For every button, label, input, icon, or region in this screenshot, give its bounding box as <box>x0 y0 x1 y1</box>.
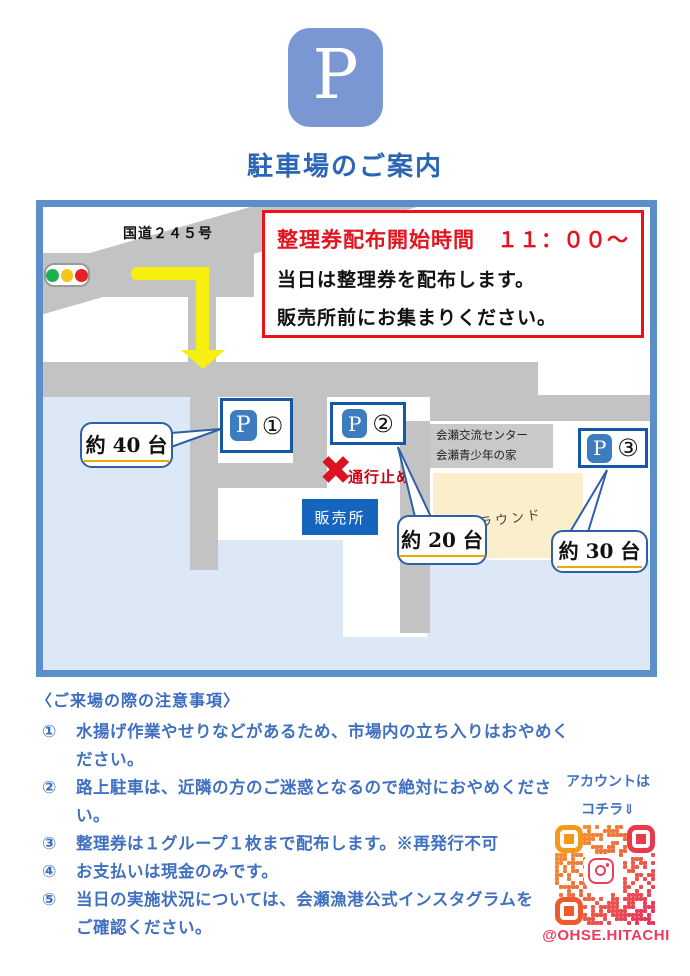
page-title: 駐車場のご案内 <box>0 146 690 183</box>
note-item-2: ② 路上駐車は、近隣の方のご迷惑となるので絶対におやめください。 <box>42 774 582 830</box>
notes-list: ① 水揚げ作業やせりなどがあるため、市場内の立ち入りはおやめください。 ② 路上… <box>42 718 582 942</box>
traffic-light-icon <box>44 263 90 287</box>
note-text-line1: 当日の実施状況については、会瀬漁港公式インスタグラムを <box>76 890 533 909</box>
note-text: 水揚げ作業やせりなどがあるため、市場内の立ち入りはおやめください。 <box>76 718 582 774</box>
water-area-bottom-center <box>343 637 427 670</box>
note-number: ④ <box>42 858 76 886</box>
note-number: ① <box>42 718 76 774</box>
note-text: 整理券は１グループ１枚まで配布します。※再発行不可 <box>76 830 582 858</box>
qr-position-marker <box>555 897 583 925</box>
note-number: ③ <box>42 830 76 858</box>
traffic-light-green-dot <box>46 269 59 282</box>
instagram-icon <box>584 854 618 888</box>
parking-map: 国道２４５号 会瀬交流センター 会瀬青少年の家 グラウンド 販売所 P ① P … <box>36 200 657 677</box>
route245-label: 国道２４５号 <box>123 223 213 243</box>
capacity-label-1: 約 40 台 <box>84 429 170 462</box>
capacity-label-3: 約 30 台 <box>557 535 643 568</box>
road-left-vertical <box>190 397 218 570</box>
capacity-bubble-3: 約 30 台 <box>551 530 648 573</box>
note-text-line2: ご確認ください。 <box>76 918 212 937</box>
parking-marker-2: P ② <box>330 402 406 445</box>
note-item-3: ③ 整理券は１グループ１枚まで配布します。※再発行不可 <box>42 830 582 858</box>
road-closed-label: 通行止め <box>348 466 412 487</box>
ticket-notice-line3: 販売所前にお集まりください。 <box>277 303 629 330</box>
notes-header: 〈ご来場の際の注意事項〉 <box>36 687 240 711</box>
road-lower-horizontal <box>218 463 327 488</box>
road-right-band <box>430 395 650 421</box>
instagram-caption-line2: コチラ⇓ <box>556 799 660 819</box>
qr-position-marker <box>627 825 655 853</box>
parking-logo-letter: P <box>313 42 359 110</box>
map-canvas: 国道２４５号 会瀬交流センター 会瀬青少年の家 グラウンド 販売所 P ① P … <box>43 207 650 670</box>
qr-position-marker <box>555 825 583 853</box>
ticket-notice-line2: 当日は整理券を配布します。 <box>277 265 629 292</box>
parking-number-3: ③ <box>617 436 639 460</box>
water-area-left <box>43 397 190 540</box>
capacity-bubble-1: 約 40 台 <box>80 422 173 468</box>
note-number: ② <box>42 774 76 830</box>
instagram-lens-icon <box>595 865 606 876</box>
parking-p-icon: P <box>230 410 257 441</box>
capacity-bubble-2: 約 20 台 <box>397 515 487 565</box>
parking-marker-1: P ① <box>220 398 293 453</box>
instagram-caption-line1: アカウントは <box>556 771 660 791</box>
instagram-camera-glyph <box>588 858 614 884</box>
note-text: 当日の実施状況については、会瀬漁港公式インスタグラムを ご確認ください。 <box>76 886 582 942</box>
instagram-handle: @OHSE.HITACHI <box>536 927 676 944</box>
parking-number-2: ② <box>372 412 394 436</box>
note-text: 路上駐車は、近隣の方のご迷惑となるので絶対におやめください。 <box>76 774 582 830</box>
ticket-time-line: 整理券配布開始時間 １１：００～ <box>277 224 629 254</box>
note-number: ⑤ <box>42 886 76 942</box>
route-arrow-head-icon <box>181 350 225 369</box>
community-center-line2: 会瀬青少年の家 <box>436 446 553 466</box>
capacity-label-2: 約 20 台 <box>399 524 485 557</box>
route-arrow-vertical <box>196 267 209 352</box>
traffic-light-red-dot <box>75 269 88 282</box>
note-item-1: ① 水揚げ作業やせりなどがあるため、市場内の立ち入りはおやめください。 <box>42 718 582 774</box>
parking-p-icon: P <box>342 409 367 438</box>
note-item-4: ④ お支払いは現金のみです。 <box>42 858 582 886</box>
community-center-block: 会瀬交流センター 会瀬青少年の家 <box>430 424 553 468</box>
traffic-light-yellow-dot <box>61 269 74 282</box>
parking-flyer: { "page": { "logo_letter": "P", "title":… <box>0 0 690 976</box>
parking-p-icon: P <box>587 434 612 463</box>
parking-logo-icon: P <box>288 28 383 127</box>
road-main-horizontal <box>43 362 538 397</box>
instagram-qr-code <box>551 821 659 929</box>
note-item-5: ⑤ 当日の実施状況については、会瀬漁港公式インスタグラムを ご確認ください。 <box>42 886 582 942</box>
ticket-notice-box: 整理券配布開始時間 １１：００～ 当日は整理券を配布します。 販売所前にお集まり… <box>262 210 644 338</box>
note-text: お支払いは現金のみです。 <box>76 858 582 886</box>
community-center-line1: 会瀬交流センター <box>436 426 553 446</box>
instagram-flash-dot-icon <box>606 863 610 867</box>
parking-number-1: ① <box>262 414 284 438</box>
sales-office-box: 販売所 <box>302 499 378 535</box>
parking-marker-3: P ③ <box>578 428 648 468</box>
water-area-right <box>427 560 650 670</box>
